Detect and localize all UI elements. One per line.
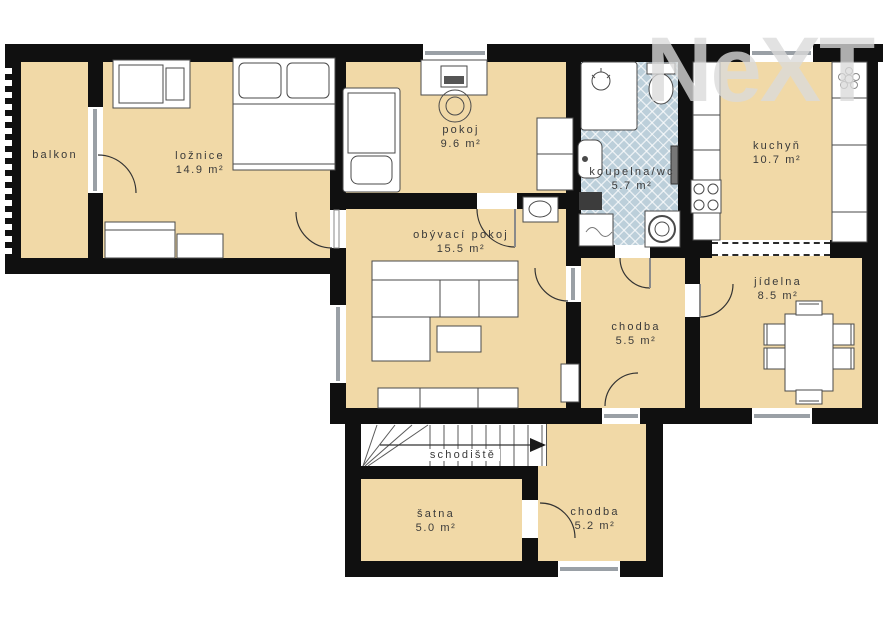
bathroom-sink [578,140,602,178]
door-arc-loznice [296,212,332,248]
kitchen-counter-right [832,62,867,242]
door-arc-koupelna [620,258,650,288]
door-leaf-loznice [334,210,339,248]
sink-tap [583,157,588,162]
door-arc-pokoj [477,209,515,247]
tv-stand [378,388,518,408]
dresser [105,222,175,258]
pillow [239,63,281,98]
dresser-small [177,234,223,258]
dining-table [785,314,833,391]
door-arc-chodba-dolni [605,373,638,406]
kitchen-counter-left-low [693,213,720,240]
coffee-table [437,326,481,352]
daybed-mattress [348,93,395,153]
daybed-pillow [351,156,392,184]
furniture-layer [0,0,894,625]
hall-cabinet [561,364,579,402]
stairs-direction-arrow [380,438,546,452]
kitchen-counter-left [693,62,720,182]
door-arc-jidelna [700,284,733,317]
bidet [579,214,613,246]
door-arc-satna [540,503,575,538]
door-arc-obyvaci-chodba [535,268,568,301]
toilet-bowl [649,74,673,104]
desk-chair-seat [446,97,464,115]
door-arc-balkon [98,155,136,193]
floor-drain [579,192,602,210]
floor-plan: balkon ložnice 14.9 m² pokoj 9.6 m² koup… [0,0,894,625]
bathtub [581,62,637,130]
crib-mattress [119,65,163,103]
toilet-tank [647,63,675,74]
radiator [671,146,678,184]
dining-chair [796,301,822,315]
dining-chair [796,390,822,404]
pillow [287,63,329,98]
computer-screen [444,76,464,84]
crib-side [166,68,184,100]
